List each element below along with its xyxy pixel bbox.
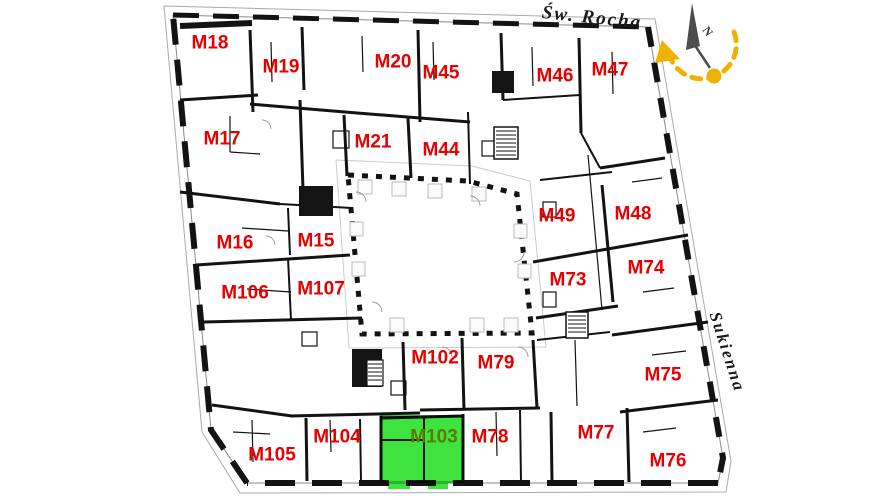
apartment-label-m48[interactable]: M48 — [615, 205, 652, 224]
apartment-label-m107[interactable]: M107 — [297, 280, 345, 299]
compass-needle-icon — [686, 3, 700, 50]
apartment-label-m74[interactable]: M74 — [628, 259, 665, 278]
apartment-label-m76[interactable]: M76 — [650, 452, 687, 471]
compass — [655, 3, 736, 84]
apartment-label-m45[interactable]: M45 — [423, 64, 460, 83]
apartment-label-m79[interactable]: M79 — [478, 354, 515, 373]
apartment-label-m21[interactable]: M21 — [355, 133, 392, 152]
apartment-label-m19[interactable]: M19 — [263, 58, 300, 77]
apartment-label-m16[interactable]: M16 — [217, 234, 254, 253]
apartment-label-m102[interactable]: M102 — [411, 349, 459, 368]
apartment-label-m105[interactable]: M105 — [248, 446, 296, 465]
apartment-label-m77[interactable]: M77 — [578, 424, 615, 443]
apartment-label-m44[interactable]: M44 — [423, 141, 460, 160]
apartment-label-m17[interactable]: M17 — [204, 130, 241, 149]
apartment-label-m46[interactable]: M46 — [537, 67, 574, 86]
floor-plan-stage: M18M19M20M45M46M47M17M21M44M49M48M16M15M… — [0, 0, 888, 500]
apartment-label-m75[interactable]: M75 — [645, 366, 682, 385]
compass-pivot-dot — [707, 69, 722, 84]
apartment-label-m47[interactable]: M47 — [592, 61, 629, 80]
apartment-label-m20[interactable]: M20 — [375, 53, 412, 72]
apartment-label-m106[interactable]: M106 — [221, 284, 269, 303]
apartment-label-m78[interactable]: M78 — [472, 428, 509, 447]
apartment-label-m49[interactable]: M49 — [539, 207, 576, 226]
apartment-label-m73[interactable]: M73 — [550, 271, 587, 290]
apartment-label-m103[interactable]: M103 — [410, 428, 458, 447]
apartment-label-m15[interactable]: M15 — [298, 232, 335, 251]
courtyard — [348, 175, 532, 334]
apartment-label-m104[interactable]: M104 — [313, 428, 361, 447]
apartment-label-m18[interactable]: M18 — [192, 34, 229, 53]
